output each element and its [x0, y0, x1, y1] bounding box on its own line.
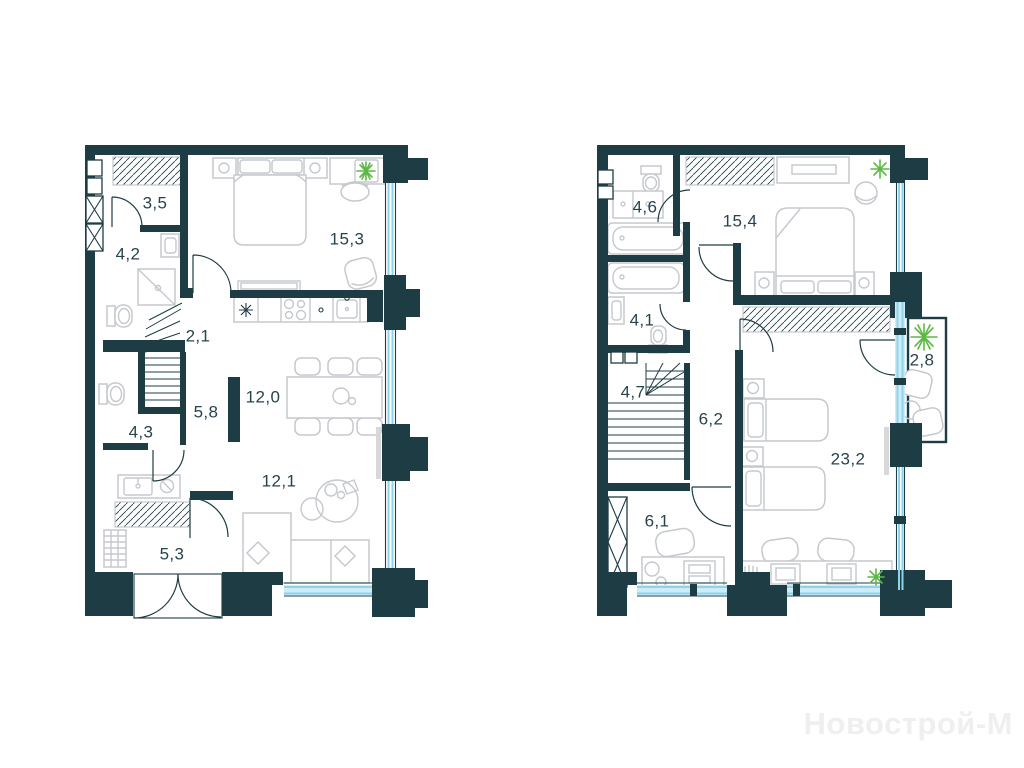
double-bed-2 — [755, 208, 874, 297]
kids-wardrobe-hatch — [743, 307, 890, 332]
room-label-hall2: 6,2 — [699, 410, 724, 429]
plant-icon-bedroom2 — [871, 160, 889, 178]
plant-icon-balcony — [911, 324, 937, 350]
room-label-kitchen: 12,0 — [246, 388, 281, 407]
toilet — [107, 305, 132, 327]
desk-stool — [341, 183, 369, 201]
bedroom-wardrobe-hatch — [686, 157, 774, 185]
room-label-corridor: 5,8 — [194, 403, 219, 422]
dining-table — [287, 377, 382, 418]
room-label-bedroom: 15,3 — [330, 230, 365, 249]
plant-icon-kids — [868, 569, 884, 585]
double-bed — [234, 158, 306, 245]
room-label-bathroom: 4,2 — [116, 245, 141, 264]
floor2-stairs — [608, 363, 684, 459]
room-label-bedroom2: 15,4 — [723, 212, 758, 231]
kids-bed-1 — [743, 379, 828, 441]
pantry-shelving — [115, 502, 190, 527]
lounge-chair — [343, 256, 379, 292]
floor-2-plan: 4,6 15,4 4,1 2,8 4,7 6,2 23,2 6,1 — [597, 145, 952, 616]
dining-set — [287, 358, 382, 435]
room-label-balcony: 2,8 — [910, 351, 935, 370]
room-label-pantry: 5,3 — [160, 545, 185, 564]
room-label-stairs2: 4,7 — [621, 383, 646, 402]
wardrobe-hatch — [113, 157, 183, 185]
room-label-kids: 23,2 — [831, 450, 866, 469]
shower — [138, 269, 175, 305]
room-label-hall: 3,5 — [143, 194, 168, 213]
dresser — [777, 157, 849, 183]
floor-1-plan: 3,5 4,2 15,3 2,1 12,0 5,8 4,3 12,1 5,3 — [85, 145, 428, 618]
office-chair — [654, 527, 696, 558]
washer-cabinet — [104, 530, 126, 567]
window-sill-2 — [884, 427, 889, 475]
rug-and-lamp — [301, 480, 358, 522]
room-label-living: 12,1 — [262, 472, 297, 491]
laundry-counter — [118, 475, 180, 498]
floor-plan-drawing: 3,5 4,2 15,3 2,1 12,0 5,8 4,3 12,1 5,3 — [0, 0, 1024, 768]
bathtub-2 — [608, 263, 684, 293]
watermark: Новострой-М — [804, 706, 1014, 741]
toilet-2 — [641, 166, 661, 192]
room-label-bathroom2: 4,6 — [633, 198, 658, 217]
room-label-wc: 4,3 — [129, 423, 154, 442]
room-label-stairs: 2,1 — [186, 327, 211, 346]
room-label-bathroom3: 4,1 — [630, 311, 655, 330]
floor1-shafts — [86, 160, 103, 251]
window-sill — [376, 427, 381, 479]
fridge-icon — [239, 303, 253, 317]
room-label-office: 6,1 — [645, 512, 670, 531]
floor-plan-page: 3,5 4,2 15,3 2,1 12,0 5,8 4,3 12,1 5,3 — [0, 0, 1024, 768]
kitchen-counter — [234, 281, 368, 322]
kids-bed-2 — [742, 447, 825, 510]
entry-double-door — [134, 574, 222, 618]
wc-toilet — [99, 383, 124, 405]
